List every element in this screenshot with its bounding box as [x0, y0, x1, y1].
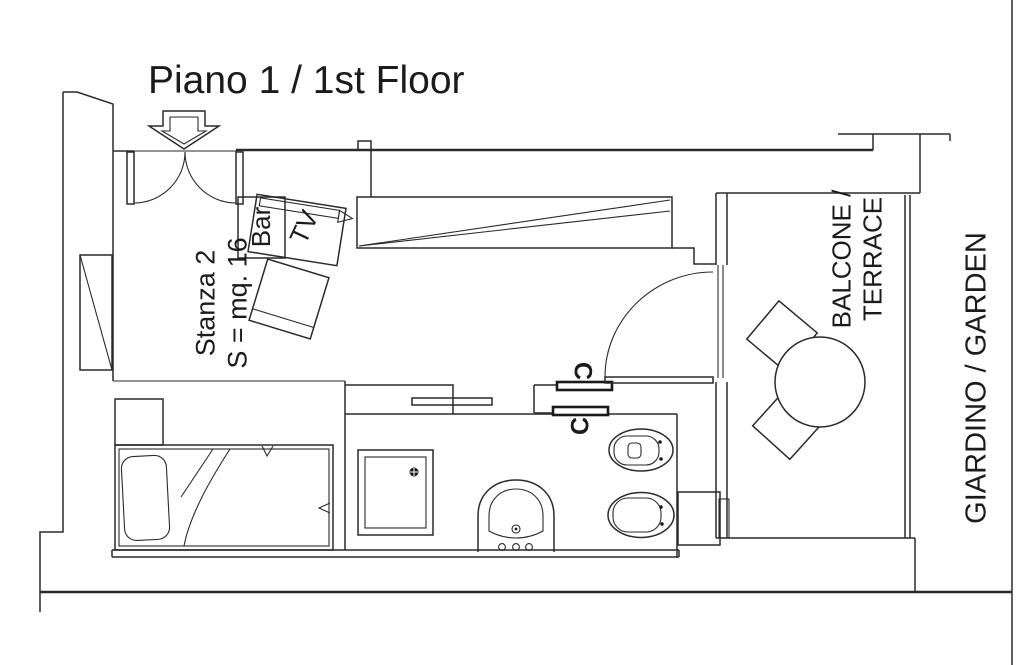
closet-label-bottom: C	[568, 417, 595, 435]
bed	[115, 445, 333, 550]
garden-label: GIARDINO / GARDEN	[961, 232, 992, 524]
bar-label: Bar	[247, 207, 275, 247]
pillow	[121, 455, 170, 541]
balcony-label: BALCONE / TERRACE	[826, 190, 887, 329]
balcony-door	[605, 265, 723, 383]
wardrobe	[80, 255, 112, 370]
shaft	[678, 492, 729, 545]
closet-bar-bottom	[553, 407, 608, 415]
floor-plan: Piano 1 / 1st Floor Stanza 2 S = mq. 16 …	[0, 0, 1024, 665]
bathroom-sliding-door	[412, 398, 492, 405]
room-area-label: S = mq. 16	[223, 237, 252, 368]
nightstand	[115, 399, 163, 445]
armchair	[249, 259, 329, 339]
page-title: Piano 1 / 1st Floor	[148, 60, 465, 102]
sink	[478, 480, 554, 552]
room-name-label: Stanza 2	[191, 250, 220, 357]
closet-bar-top	[557, 382, 612, 390]
closet-label-top: C	[569, 362, 596, 380]
toilet	[608, 493, 674, 538]
window	[357, 197, 716, 264]
bidet	[609, 429, 673, 471]
entrance-arrow-icon	[149, 111, 219, 149]
balcony-table	[775, 337, 865, 427]
shower	[358, 450, 433, 535]
entrance-door	[127, 152, 243, 204]
closet-tracks	[534, 382, 612, 415]
